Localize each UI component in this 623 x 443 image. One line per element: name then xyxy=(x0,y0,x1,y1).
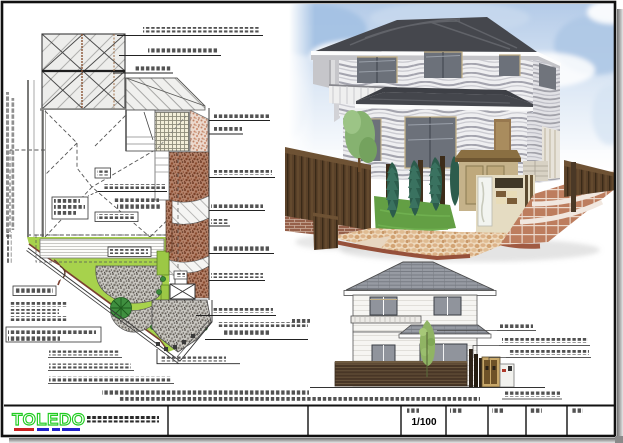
svg-text:TOLEDO: TOLEDO xyxy=(12,410,86,429)
svg-text:1/100: 1/100 xyxy=(411,417,436,428)
